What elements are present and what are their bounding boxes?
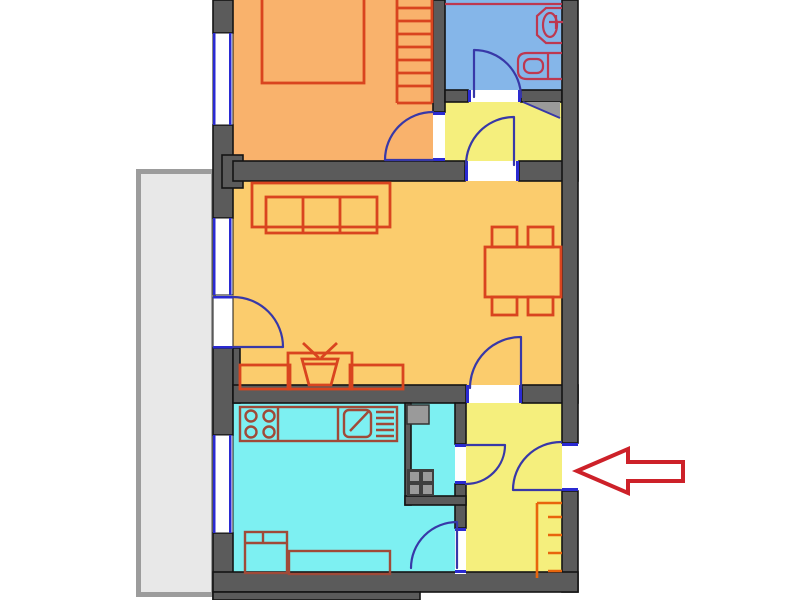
door-jamb bbox=[562, 443, 578, 446]
wall-bedroom-living bbox=[233, 161, 465, 181]
closet-door-opening bbox=[455, 444, 466, 484]
wall-right-outer bbox=[562, 0, 578, 443]
wall-bottom-step bbox=[213, 592, 420, 600]
window-frame-line bbox=[229, 218, 232, 295]
wall-shaft-closet bbox=[405, 496, 466, 505]
door-jamb bbox=[455, 444, 466, 447]
entry-door-opening bbox=[562, 443, 578, 491]
wall-bathroom-hallway bbox=[521, 90, 562, 102]
wall-kitchen-hall bbox=[455, 403, 466, 444]
balcony-floor bbox=[136, 169, 216, 597]
door-jamb bbox=[455, 570, 466, 573]
door-jamb bbox=[516, 161, 519, 181]
window-frame-line bbox=[213, 435, 216, 533]
window-frame-line bbox=[229, 33, 232, 125]
door-jamb bbox=[213, 296, 233, 299]
door-jamb bbox=[562, 488, 578, 491]
door-jamb bbox=[213, 346, 233, 349]
floor-plan bbox=[0, 0, 800, 600]
entry-arrow bbox=[577, 449, 683, 493]
door-jamb bbox=[433, 158, 445, 161]
window-frame-line bbox=[213, 218, 216, 295]
window-frame-line bbox=[229, 435, 232, 533]
vent-cell bbox=[423, 485, 432, 494]
bathroom-door-opening bbox=[468, 90, 521, 102]
vent-cell bbox=[410, 472, 419, 481]
hallway-living-door-opening bbox=[465, 161, 519, 181]
wall-bedroom-bathroom bbox=[433, 0, 445, 112]
wall-bottom-outer bbox=[213, 572, 578, 592]
vent-cell bbox=[410, 485, 419, 494]
door-jamb bbox=[466, 385, 469, 403]
room-living bbox=[233, 181, 562, 385]
door-jamb bbox=[433, 112, 445, 115]
bedroom-door-opening bbox=[433, 112, 445, 161]
vent-cell bbox=[423, 472, 432, 481]
living-hall-door-opening bbox=[466, 385, 522, 403]
door-jamb bbox=[455, 481, 466, 484]
wall-bathroom-hallway bbox=[445, 90, 468, 102]
wall-segment bbox=[213, 0, 233, 33]
wall-segment bbox=[213, 348, 233, 435]
door-jamb bbox=[468, 90, 471, 102]
room-bathroom bbox=[445, 0, 562, 90]
vent-shaft-box bbox=[407, 405, 429, 424]
floor-plan-page bbox=[0, 0, 800, 600]
balcony-door-opening bbox=[213, 297, 233, 348]
window-frame-line bbox=[213, 33, 216, 125]
